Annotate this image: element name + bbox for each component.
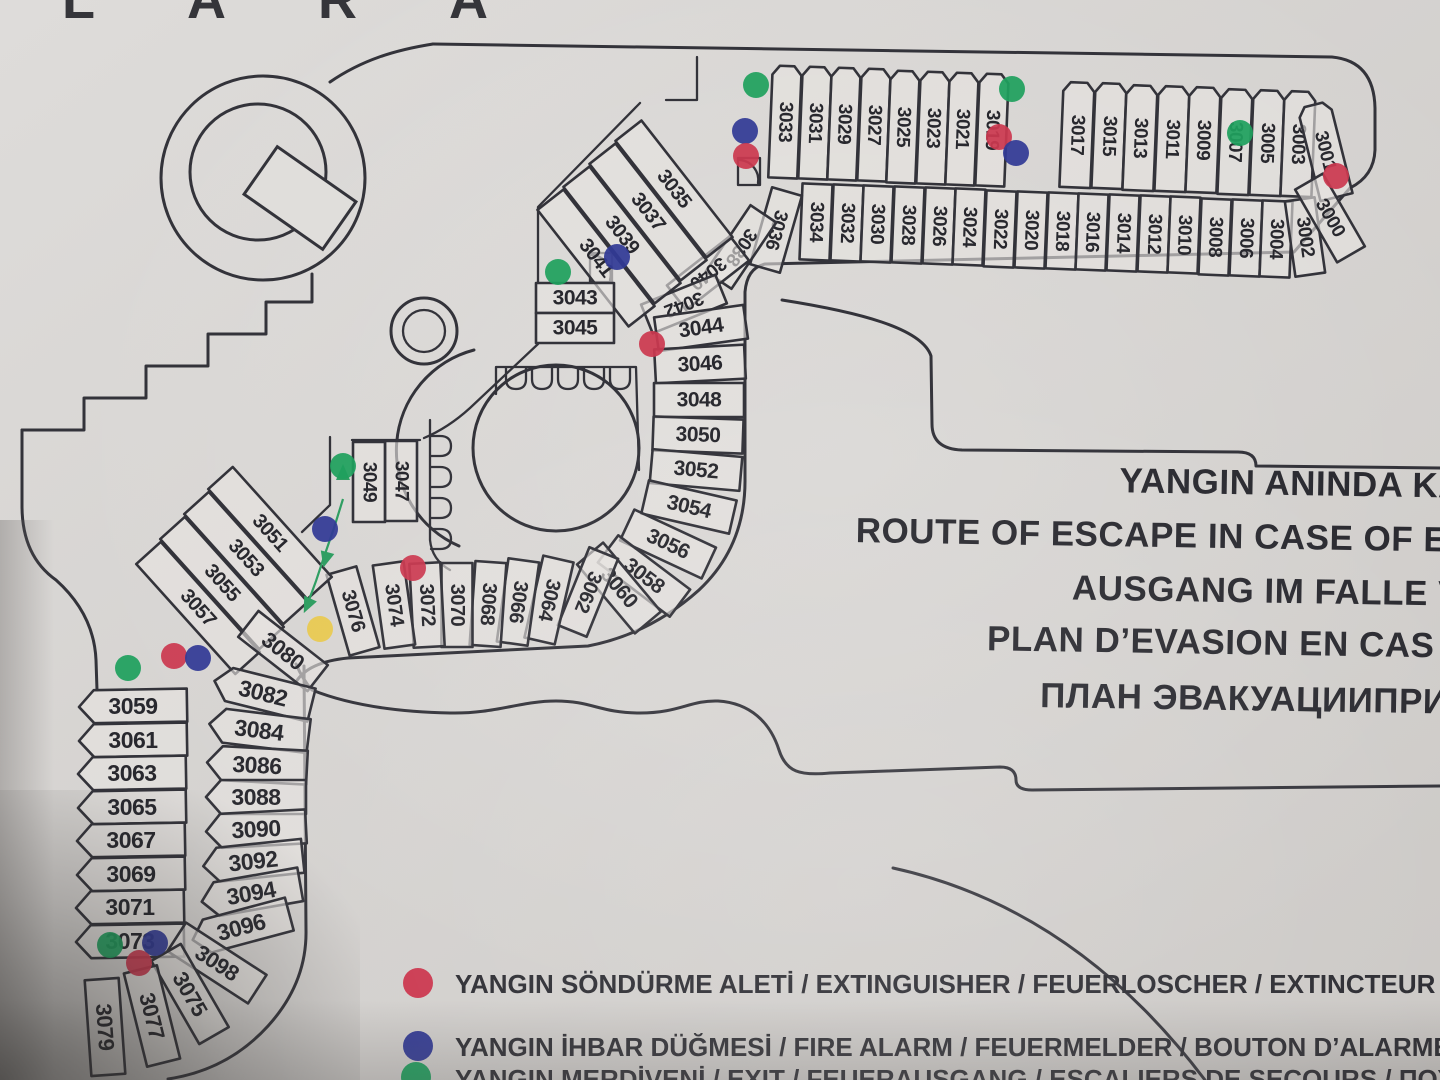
- evacuation-plan-photo: 3033303130293027302530233021301930173015…: [0, 0, 1440, 1080]
- glare-highlight-2: [0, 0, 1440, 1080]
- evacuation-floor-plan: 3033303130293027302530233021301930173015…: [0, 0, 1440, 1080]
